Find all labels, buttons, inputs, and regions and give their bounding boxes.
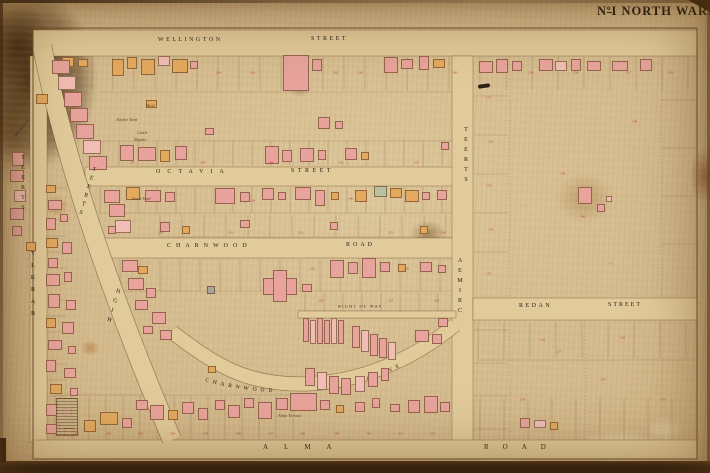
lot-number: 171	[608, 262, 613, 265]
building	[278, 192, 286, 200]
right-of-way-lane	[298, 311, 456, 318]
building	[422, 192, 430, 200]
lot-number: 239	[250, 199, 255, 202]
building	[290, 393, 317, 411]
building	[84, 420, 96, 432]
lot-number: 154	[488, 228, 493, 231]
building	[390, 188, 402, 198]
building	[433, 59, 445, 68]
building	[108, 226, 116, 234]
lot-number: 259	[528, 71, 533, 74]
building	[362, 258, 376, 278]
lot-number: 312	[430, 432, 435, 435]
building	[115, 220, 131, 233]
building	[361, 152, 369, 160]
building	[640, 59, 652, 71]
lot-number: 301	[74, 432, 79, 435]
building	[190, 61, 198, 69]
title-text: I NORTH WARD	[612, 4, 710, 18]
building	[76, 124, 94, 139]
lot-number: 304	[170, 432, 175, 435]
building	[331, 318, 337, 344]
building	[68, 346, 76, 354]
lot-number: 232	[298, 231, 303, 234]
building	[295, 187, 311, 200]
building	[66, 300, 76, 310]
building	[138, 147, 156, 161]
building	[612, 61, 628, 71]
building	[437, 190, 447, 200]
building	[329, 376, 339, 394]
building	[338, 320, 344, 344]
building	[128, 278, 144, 290]
street-label-street: STREET	[291, 168, 334, 174]
building	[100, 412, 118, 425]
building	[300, 148, 314, 162]
lot-number: 220	[434, 299, 439, 302]
building	[438, 265, 446, 273]
lot-number: 251	[414, 161, 419, 164]
building	[318, 150, 326, 160]
building	[379, 338, 387, 358]
building	[48, 258, 58, 268]
building	[165, 192, 175, 202]
lot-number: 311	[398, 432, 403, 435]
building	[122, 260, 138, 272]
lot-number: 158	[600, 378, 605, 381]
building	[276, 398, 288, 410]
street-redan	[473, 298, 697, 320]
lot-number: 152	[488, 140, 493, 143]
torn-corner-bottom-left	[0, 438, 6, 463]
lot-number: 264	[216, 71, 221, 74]
lot-number: 310	[366, 432, 371, 435]
building	[361, 330, 369, 352]
lot-number: 260	[452, 71, 457, 74]
building	[58, 76, 76, 90]
building	[496, 59, 508, 73]
street-label-barkly: YLKRAB	[30, 251, 36, 323]
building	[424, 396, 438, 413]
lot-number: 162	[620, 336, 625, 339]
lot-number: 156	[520, 398, 525, 401]
building	[46, 238, 58, 248]
building	[390, 404, 400, 412]
building	[46, 218, 56, 230]
lot-number: 153	[486, 184, 491, 187]
lot-number: 257	[626, 71, 631, 74]
building	[52, 60, 70, 74]
lot-number: 166	[580, 215, 585, 218]
building	[302, 284, 312, 292]
title-no: N	[597, 4, 607, 18]
lot-number: 256	[668, 71, 673, 74]
street-label-road: ROAD	[346, 242, 375, 248]
lot-number: 306	[236, 432, 241, 435]
photo-edge-bottom	[0, 461, 710, 473]
lot-number: 161	[540, 338, 545, 341]
building	[420, 226, 428, 234]
building	[78, 59, 88, 67]
building	[438, 318, 448, 327]
lot-number: 240	[348, 197, 353, 200]
building	[555, 61, 567, 71]
building	[64, 368, 76, 378]
building	[348, 262, 358, 274]
building	[273, 270, 287, 302]
building	[83, 140, 101, 154]
building	[336, 405, 344, 413]
photo-edge-top	[0, 0, 710, 3]
building	[368, 372, 378, 387]
building	[512, 61, 522, 71]
building	[60, 214, 68, 222]
street-label-alma: ALMA	[263, 444, 348, 451]
building	[141, 59, 155, 75]
annotation-shed: Shed	[146, 104, 154, 109]
building	[215, 188, 235, 204]
building	[228, 405, 240, 418]
hatched-building	[56, 398, 78, 436]
building	[401, 59, 413, 69]
building	[408, 400, 420, 413]
building	[120, 145, 134, 161]
building	[606, 196, 612, 202]
building	[335, 121, 343, 129]
building	[146, 288, 156, 298]
street-label-road: ROAD	[484, 444, 560, 451]
building	[405, 190, 419, 202]
building	[48, 200, 62, 210]
street-wellington	[33, 30, 697, 56]
building	[175, 146, 187, 160]
building	[62, 242, 72, 254]
building	[70, 388, 78, 396]
building	[46, 274, 60, 286]
building	[330, 222, 338, 230]
street-label-street: STREET	[608, 302, 642, 308]
building	[318, 117, 330, 129]
map-title: NoI NORTH WARD	[597, 4, 710, 19]
building	[372, 398, 380, 408]
lot-number: 249	[268, 161, 273, 164]
building	[381, 368, 389, 381]
building	[303, 318, 309, 342]
building	[36, 94, 48, 104]
lot-number: 309	[334, 432, 339, 435]
building	[262, 188, 274, 200]
lot-number: 262	[333, 71, 338, 74]
building	[64, 92, 82, 107]
building	[122, 418, 132, 428]
annotation-alma-terrace: Alma Terrace	[278, 414, 302, 419]
building	[374, 186, 387, 197]
building	[138, 266, 148, 274]
building	[112, 59, 124, 76]
building	[282, 150, 292, 162]
building	[64, 272, 72, 282]
building	[205, 128, 214, 135]
lot-number: 263	[250, 71, 255, 74]
building	[172, 59, 188, 73]
building	[46, 318, 56, 328]
building	[355, 190, 367, 202]
building	[380, 262, 390, 272]
building	[152, 312, 166, 324]
building	[355, 376, 365, 392]
building	[150, 405, 164, 420]
annotation-stock-yard: Stock Yard	[132, 197, 150, 202]
street-label-octavia: OCTAVIA	[156, 169, 231, 175]
lot-number: 226	[404, 267, 409, 270]
street-label-street: TEERTS	[463, 127, 469, 187]
building	[160, 330, 172, 340]
lot-number: 151	[486, 96, 491, 99]
building	[330, 260, 344, 278]
building	[104, 190, 120, 203]
building	[143, 326, 153, 334]
building	[207, 286, 215, 294]
building	[160, 150, 170, 162]
street-label-street: STREET	[311, 36, 348, 42]
building	[324, 320, 330, 344]
lot-number: 157	[556, 350, 561, 353]
building	[182, 226, 190, 234]
building	[48, 294, 60, 308]
building	[534, 420, 546, 428]
building	[441, 142, 449, 150]
lot-number: 231	[228, 231, 233, 234]
building	[198, 408, 208, 420]
lot-number: 230	[158, 231, 163, 234]
building	[305, 368, 315, 386]
building	[62, 322, 74, 334]
building	[352, 326, 360, 348]
building	[419, 56, 429, 70]
building	[571, 59, 581, 71]
building	[420, 262, 432, 272]
lot-number: 307	[268, 432, 273, 435]
street-label-crimea: AEMIRC	[457, 258, 463, 318]
lot-number: 261	[358, 71, 363, 74]
building	[240, 192, 250, 202]
building	[240, 220, 250, 228]
building	[50, 384, 62, 394]
street-octavia	[85, 167, 463, 186]
street-crimea	[452, 56, 473, 442]
building	[26, 242, 36, 251]
building	[578, 187, 592, 204]
building	[158, 56, 170, 66]
lot-number: 303	[138, 432, 143, 435]
annotation-cattle: Cattle	[137, 131, 148, 136]
building	[283, 55, 309, 91]
building	[355, 402, 365, 412]
street-label-redan: REDAN	[519, 303, 552, 309]
lot-number: 234	[440, 231, 445, 234]
building	[384, 57, 398, 73]
building	[136, 400, 148, 410]
building	[550, 422, 558, 430]
building	[46, 360, 56, 372]
building	[370, 334, 378, 356]
building	[317, 372, 327, 390]
photo-edge-left	[0, 0, 3, 473]
building	[46, 185, 56, 193]
lot-number: 308	[300, 432, 305, 435]
building	[312, 59, 322, 71]
street-label-charnwood: CHARNWOOD	[167, 243, 252, 249]
building	[587, 61, 601, 71]
building	[317, 318, 323, 344]
lot-number: 302	[106, 432, 111, 435]
lot-number: 247	[130, 161, 135, 164]
building	[310, 320, 316, 344]
lot-number: 258	[573, 71, 578, 74]
building	[331, 192, 339, 200]
building	[70, 108, 88, 122]
building	[258, 402, 272, 419]
lot-number: 305	[203, 432, 208, 435]
building	[109, 204, 125, 217]
lot-number: 219	[388, 299, 393, 302]
building	[135, 300, 148, 310]
building	[208, 366, 216, 373]
building	[320, 400, 330, 410]
annotation-market: Market	[134, 138, 147, 143]
lot-number: 250	[338, 161, 343, 164]
lot-number: 225	[310, 267, 315, 270]
building	[432, 334, 442, 344]
road-charnwood	[104, 238, 463, 258]
building	[127, 57, 137, 69]
building	[520, 418, 530, 428]
building	[12, 226, 22, 236]
building	[182, 402, 194, 414]
lot-number: 155	[486, 272, 491, 275]
street-label-right-of-way: RIGHT OF WAY	[338, 305, 383, 309]
map-sheet: CHARNWOOD GROVE WELLINGTONSTREETOCTAVIAS…	[0, 0, 710, 473]
lot-number: 150	[560, 172, 565, 175]
annotation-timber-yard: Timber Yard	[116, 118, 137, 123]
building	[388, 342, 396, 360]
lot-number: 159	[660, 398, 665, 401]
building	[597, 204, 605, 212]
building	[315, 190, 325, 206]
building	[539, 59, 553, 71]
building	[345, 148, 357, 160]
building	[168, 410, 178, 420]
road-alma	[33, 440, 697, 459]
lot-number: 218	[318, 299, 323, 302]
lot-number: 248	[200, 161, 205, 164]
lot-number: 149	[632, 120, 637, 123]
building	[479, 61, 493, 73]
building	[244, 398, 254, 408]
street-label-wellington: WELLINGTON	[158, 37, 223, 43]
building	[415, 330, 429, 342]
building	[215, 400, 225, 410]
building	[48, 340, 62, 350]
building	[341, 378, 351, 395]
building	[440, 402, 450, 412]
lot-number: 233	[388, 231, 393, 234]
street-label-street: TEERTS	[20, 155, 26, 215]
